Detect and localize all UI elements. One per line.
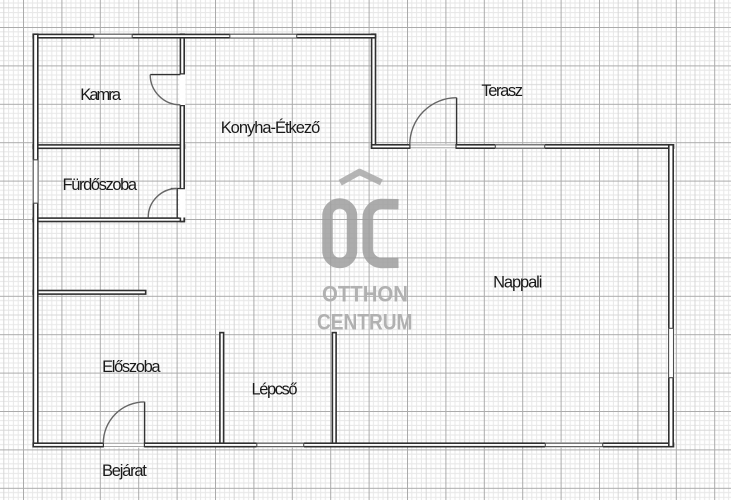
svg-text:Előszoba: Előszoba (102, 358, 161, 376)
svg-text:Konyha-Étkező: Konyha-Étkező (221, 118, 321, 137)
svg-text:Terasz: Terasz (481, 82, 523, 100)
svg-text:OTTHON: OTTHON (322, 281, 408, 306)
svg-text:Bejárat: Bejárat (102, 462, 147, 480)
svg-text:CENTRUM: CENTRUM (317, 309, 412, 334)
svg-text:Fürdőszoba: Fürdőszoba (63, 176, 138, 194)
svg-text:Lépcső: Lépcső (252, 381, 298, 399)
svg-text:Kamra: Kamra (80, 86, 122, 104)
svg-text:Nappali: Nappali (493, 273, 542, 291)
